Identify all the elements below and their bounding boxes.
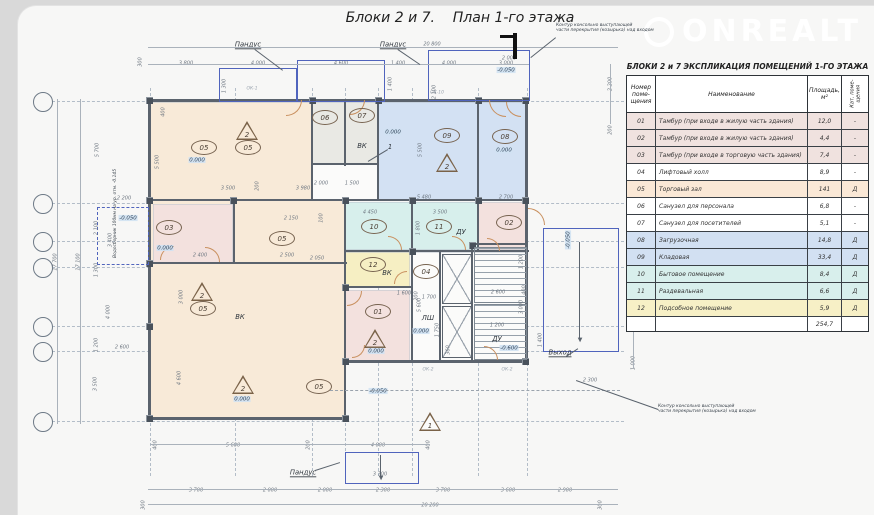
porch-outline — [543, 228, 619, 352]
column — [409, 248, 416, 255]
explication-row: 07Санузел для посетителей5,1- — [627, 215, 868, 232]
dim-label: 100 — [318, 213, 324, 222]
ramp-triangle-marker: 1 — [419, 412, 441, 431]
text-label: 1 — [388, 143, 392, 151]
explication-row: 05Торговый зал141Д — [627, 181, 868, 198]
dim-label: 2 600 — [491, 289, 505, 295]
elevation-label: 0.000 — [413, 328, 430, 334]
dim-label: 3 000 — [499, 60, 513, 66]
explication-title: БЛОКИ 2 и 7 ЭКСПЛИКАЦИЯ ПОМЕЩЕНИЙ 1-ГО Э… — [626, 62, 869, 71]
cell-num: 01 — [627, 113, 656, 129]
elevation-label: -0.050 — [119, 215, 138, 221]
dim-label: 2 100 — [431, 85, 437, 99]
text-label: ВК — [235, 313, 244, 321]
cell-name: Раздевальная — [656, 283, 808, 299]
dim-label: 2 300 — [583, 377, 597, 383]
dim-label: 3 000 — [518, 300, 524, 314]
col-header-category: Кат. поме- щения — [842, 76, 868, 112]
dim-label: 1 600 — [397, 290, 411, 296]
cell-cat: - — [842, 130, 868, 146]
porch-outline — [297, 60, 385, 102]
column — [342, 415, 349, 422]
annotation: Контур консольно выступающей части перек… — [658, 403, 796, 413]
explication-table: БЛОКИ 2 и 7 ЭКСПЛИКАЦИЯ ПОМЕЩЕНИЙ 1-ГО Э… — [626, 62, 869, 332]
cell-cat: Д — [842, 181, 868, 197]
text-label: ДУ — [456, 228, 465, 236]
dim-label: 3 800 — [179, 60, 193, 66]
wall — [233, 199, 235, 264]
column — [522, 197, 529, 204]
explication-body: 01Тамбур (при входе в жилую часть здания… — [627, 113, 868, 317]
leader-line — [579, 242, 580, 338]
wall — [411, 199, 413, 362]
explication-row: 01Тамбур (при входе в жилую часть здания… — [627, 113, 868, 130]
dim-label: 1 200 — [518, 255, 524, 269]
cell-num: 02 — [627, 130, 656, 146]
porch-outline — [219, 68, 297, 102]
room-tag: 05 — [235, 140, 261, 155]
leader-line — [315, 462, 340, 471]
column — [146, 97, 153, 104]
wall — [148, 262, 347, 264]
elevation-label: 0.000 — [385, 129, 402, 135]
section-mark-icon — [513, 33, 517, 59]
dim-line — [330, 390, 620, 391]
dim-label: 4 600 — [334, 60, 348, 66]
column — [230, 197, 237, 204]
explication-row: 09Кладовая33,4Д — [627, 249, 868, 266]
dim-label: 400 — [152, 440, 158, 449]
cell-num: 10 — [627, 266, 656, 282]
dim-label: 4 600 — [176, 371, 182, 385]
room-tag: 04 — [413, 264, 439, 279]
dim-label: 5 700 — [94, 143, 100, 157]
cell-name: Санузел для посетителей — [656, 215, 808, 231]
col-header-area: Площадь, м² — [808, 76, 842, 112]
dim-label: 1 200 — [93, 338, 99, 352]
text-label: ОК-2 — [502, 367, 513, 372]
dim-label: 5 500 — [417, 143, 423, 157]
dim-label: 2 000 — [314, 180, 328, 186]
axis-bubble — [33, 412, 53, 432]
total-cell-cat — [842, 317, 868, 331]
explication-header: Номер поме- щения Наименование Площадь, … — [627, 76, 868, 113]
dim-label: 3 500 — [92, 377, 98, 391]
text-label: Пандус — [290, 469, 316, 478]
col-header-category-text: Кат. поме- щения — [849, 80, 861, 108]
dim-label: 2 050 — [310, 255, 324, 261]
door-arc-icon — [528, 208, 545, 225]
cell-name: Кладовая — [656, 249, 808, 265]
cell-area: 5,1 — [808, 215, 842, 231]
dim-label: 3 000 — [178, 290, 184, 304]
total-cell-num — [627, 317, 656, 331]
wall — [439, 250, 441, 362]
dim-label: 1 800 — [415, 221, 421, 235]
dim-label: 4 000 — [105, 305, 111, 319]
explication-row: 10Бытовое помещение8,4Д — [627, 266, 868, 283]
dim-label: 4 000 — [442, 60, 456, 66]
wall — [344, 99, 346, 166]
wall — [345, 360, 529, 363]
wall — [472, 243, 527, 245]
column — [146, 197, 153, 204]
cell-cat: - — [842, 198, 868, 214]
cell-area: 8,4 — [808, 266, 842, 282]
dim-label: 200 — [413, 291, 419, 300]
annotation: Контур консольно выступающей части перек… — [556, 22, 688, 32]
room — [378, 102, 478, 200]
axis-bubble — [33, 317, 53, 337]
elevation-label: 0.000 — [496, 147, 513, 153]
cell-area: 6,8 — [808, 198, 842, 214]
dim-label: 3 980 — [296, 185, 310, 191]
cell-num: 08 — [627, 232, 656, 248]
dim-label: 2 600 — [115, 344, 129, 350]
cell-area: 7,4 — [808, 147, 842, 163]
column — [342, 197, 349, 204]
cell-cat: - — [842, 113, 868, 129]
dim-label: 2 700 — [499, 194, 513, 200]
explication-row: 04Лифтовый холл8,9- — [627, 164, 868, 181]
elevation-label: -0.050 — [497, 67, 516, 73]
dim-label: 4 450 — [363, 209, 377, 215]
cell-num: 05 — [627, 181, 656, 197]
elevation-label: 0.000 — [157, 245, 174, 251]
col-header-name: Наименование — [656, 76, 808, 112]
explication-row: 02Тамбур (при входе в жилую часть здания… — [627, 130, 868, 147]
dim-line — [57, 99, 58, 424]
wall — [311, 99, 313, 166]
wall — [148, 199, 348, 201]
room-tag: 05 — [191, 140, 217, 155]
dim-label: 200 — [254, 181, 260, 190]
dim-label: 1 750 — [434, 323, 440, 337]
cell-area: 14,8 — [808, 232, 842, 248]
dim-label: 400 — [521, 285, 527, 294]
cell-num: 06 — [627, 198, 656, 214]
dim-line — [148, 504, 618, 505]
text-label: ЛШ — [422, 314, 434, 322]
dim-label: 4 000 — [251, 60, 265, 66]
total-row: 254,7 — [627, 317, 868, 331]
cell-area: 5,9 — [808, 300, 842, 316]
dim-label: 400 — [425, 440, 431, 449]
elevation-label: 0.000 — [234, 396, 251, 402]
cell-cat: Д — [842, 249, 868, 265]
wall — [311, 164, 313, 201]
dim-label: 5 480 — [417, 194, 431, 200]
dim-label: 300 — [140, 500, 146, 509]
text-label: ОК-1 — [247, 86, 258, 91]
cell-num: 04 — [627, 164, 656, 180]
cell-cat: - — [842, 215, 868, 231]
cell-name: Подсобное помещение — [656, 300, 808, 316]
wall — [311, 163, 379, 165]
wall — [148, 417, 347, 420]
elevation-label: -0.050 — [565, 231, 571, 250]
explication-row: 12Подсобное помещение5,9Д — [627, 300, 868, 317]
cell-cat: Д — [842, 283, 868, 299]
section-mark-icon — [500, 35, 513, 38]
dim-label: 300 — [597, 500, 603, 509]
leader-line — [380, 455, 381, 476]
cell-name: Тамбур (при входе в жилую часть здания) — [656, 130, 808, 146]
dim-line — [80, 99, 81, 424]
total-cell-name — [656, 317, 808, 331]
dim-label: 2 150 — [284, 215, 298, 221]
axis-bubble — [33, 194, 53, 214]
dim-label: 2 100 — [93, 221, 99, 235]
cell-area: 8,9 — [808, 164, 842, 180]
col-header-number: Номер поме- щения — [627, 76, 656, 112]
dim-label: 1 200 — [490, 322, 504, 328]
ramp-triangle-marker: 2 — [236, 121, 258, 140]
room-tag: 05 — [190, 301, 216, 316]
dim-label: 300 — [137, 57, 143, 66]
cell-name: Торговый зал — [656, 181, 808, 197]
dim-label: 1 400 — [391, 60, 405, 66]
cell-cat: - — [842, 147, 868, 163]
axis-bubble — [33, 232, 53, 252]
text-label: ВК — [357, 142, 366, 150]
cell-area: 33,4 — [808, 249, 842, 265]
column — [342, 358, 349, 365]
cell-num: 12 — [627, 300, 656, 316]
ramp-triangle-marker: 2 — [364, 329, 386, 348]
text-label: Пандус — [380, 41, 406, 50]
room-tag: 06 — [312, 110, 338, 125]
elevation-label: 0.000 — [368, 348, 385, 354]
elevation-label: -0.600 — [500, 345, 519, 351]
elevation-label: 0.000 — [189, 157, 206, 163]
ramp-triangle-marker: 2 — [232, 375, 254, 394]
room-tag: 05 — [306, 379, 332, 394]
dim-label: 5 500 — [154, 155, 160, 169]
dim-label: 2 400 — [193, 252, 207, 258]
total-area-value: 254,7 — [808, 317, 842, 331]
room-tag: 11 — [426, 219, 452, 234]
room-tag: 01 — [365, 304, 391, 319]
cell-num: 09 — [627, 249, 656, 265]
annotation: Водосборник 100мм на ур. отм. -0.145 — [112, 132, 117, 259]
dim-label: 1 300 — [93, 263, 99, 277]
column — [475, 197, 482, 204]
axis-bubble — [33, 258, 53, 278]
elevation-label: -0.050 — [369, 388, 388, 394]
cell-num: 03 — [627, 147, 656, 163]
dim-label: 3 500 — [433, 209, 447, 215]
cell-cat: Д — [842, 232, 868, 248]
cell-num: 11 — [627, 283, 656, 299]
cell-name: Тамбур (при входе в торговую часть здани… — [656, 147, 808, 163]
cell-name: Санузел для персонала — [656, 198, 808, 214]
wall — [344, 199, 346, 419]
cell-area: 141 — [808, 181, 842, 197]
dim-label: 1 400 — [537, 333, 543, 347]
room-tag: 09 — [434, 128, 460, 143]
room-tag: 10 — [361, 219, 387, 234]
cell-name: Тамбур (при входе в жилую часть здания) — [656, 113, 808, 129]
cell-num: 07 — [627, 215, 656, 231]
cell-name: Загрузочная — [656, 232, 808, 248]
cell-cat: Д — [842, 300, 868, 316]
dim-label: 1 300 — [221, 79, 227, 93]
wall — [477, 99, 479, 251]
column — [409, 197, 416, 204]
slope-arrow-icon: ▼ — [578, 337, 583, 344]
elevator-shaft — [442, 254, 472, 304]
cell-name: Лифтовый холл — [656, 164, 808, 180]
cell-cat: - — [842, 164, 868, 180]
column — [146, 415, 153, 422]
room-tag: 02 — [496, 215, 522, 230]
text-label: ОК-2 — [423, 367, 434, 372]
column — [146, 323, 153, 330]
explication-row: 06Санузел для персонала6,8- — [627, 198, 868, 215]
grid-line — [52, 421, 624, 422]
ramp-triangle-marker: 2 — [436, 153, 458, 172]
room-tag: 03 — [156, 220, 182, 235]
room-tag: 08 — [492, 129, 518, 144]
dim-label: 1 700 — [422, 294, 436, 300]
slope-arrow-icon: ▼ — [379, 475, 384, 482]
dim-line — [148, 64, 529, 65]
dim-line — [148, 47, 618, 48]
explication-row: 03Тамбур (при входе в торговую часть зда… — [627, 147, 868, 164]
room-tag: 07 — [349, 108, 375, 123]
dim-label: 200 — [607, 125, 613, 134]
cell-name: Бытовое помещение — [656, 266, 808, 282]
dim-label: 1 500 — [345, 180, 359, 186]
text-label: ВК — [382, 269, 391, 277]
room-tag: 05 — [269, 231, 295, 246]
dim-label: 3 500 — [221, 185, 235, 191]
ramp-triangle-marker: 2 — [191, 282, 213, 301]
dim-line — [150, 444, 430, 445]
text-label: Пандус — [235, 41, 261, 50]
cell-cat: Д — [842, 266, 868, 282]
dim-label: 400 — [160, 107, 166, 116]
dim-label: 200 — [305, 440, 311, 449]
axis-bubble — [33, 92, 53, 112]
dim-label: 1 400 — [387, 77, 393, 91]
cell-area: 12,0 — [808, 113, 842, 129]
cell-area: 4,4 — [808, 130, 842, 146]
dim-line — [610, 64, 611, 124]
column — [342, 284, 349, 291]
wall — [377, 99, 379, 201]
dim-line — [148, 489, 618, 490]
leader-line — [576, 380, 658, 410]
explication-row: 11Раздевальная6,6Д — [627, 283, 868, 300]
text-label: ДУ — [492, 335, 501, 343]
axis-bubble — [33, 342, 53, 362]
dim-label: 2 200 — [117, 195, 131, 201]
explication-row: 08Загрузочная14,8Д — [627, 232, 868, 249]
wall — [344, 286, 412, 288]
dim-label: 360 — [445, 345, 451, 354]
cell-area: 6,6 — [808, 283, 842, 299]
dim-label: 20 800 — [423, 41, 440, 47]
dim-label: 2 500 — [280, 252, 294, 258]
